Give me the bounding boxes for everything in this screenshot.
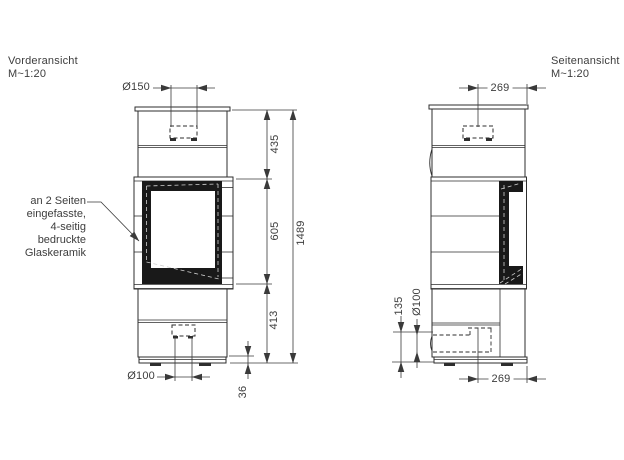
dim-air-inlet-height: 135: [393, 297, 406, 316]
dim-air-inlet-diameter-side: Ø100: [411, 288, 424, 316]
annotation-leader-line: [87, 202, 139, 241]
dim-total-height: 1489: [295, 220, 308, 245]
dim-flue-diameter: Ø150: [112, 81, 150, 94]
dim-lower-height: 413: [268, 311, 281, 330]
side-view-title: Seitenansicht: [551, 55, 620, 68]
front-flue-outlet: [170, 126, 197, 138]
annotation-line: bedruckte: [10, 234, 86, 247]
side-glass-window: [509, 192, 523, 266]
dim-upper-height: 435: [269, 135, 282, 154]
side-view-drawing: [429, 105, 528, 366]
side-flue-outlet: [463, 126, 493, 138]
front-view-title: Vorderansicht: [8, 55, 78, 68]
technical-drawing-page: Vorderansicht M~1:20 Seitenansicht M~1:2…: [0, 0, 624, 460]
dim-base-height: 36: [237, 386, 250, 399]
side-view-scale: M~1:20: [551, 68, 620, 81]
dim-depth-offset: 269: [489, 373, 514, 386]
annotation-line: 4-seitig: [10, 221, 86, 234]
annotation-line: an 2 Seiten: [10, 195, 86, 208]
dim-flue-offset: 269: [488, 81, 513, 94]
side-air-duct: [433, 328, 493, 352]
front-base-plate: [139, 357, 226, 363]
annotation-line: eingefasste,: [10, 208, 86, 221]
glass-ceramic-annotation: an 2 Seiten eingefasste, 4-seitig bedruc…: [10, 195, 86, 260]
annotation-line: Glaskeramik: [10, 247, 86, 260]
side-base-plate: [434, 357, 527, 363]
side-top-plate: [429, 105, 528, 109]
drawing-canvas: [0, 0, 624, 460]
front-view-scale: M~1:20: [8, 68, 78, 81]
front-view-drawing: [134, 107, 233, 366]
front-top-plate: [135, 107, 230, 111]
dim-air-inlet-diameter-front: Ø100: [117, 370, 155, 383]
dim-firebox-height: 605: [269, 222, 282, 241]
front-glass-window: [151, 191, 215, 268]
front-air-inlet: [172, 325, 195, 336]
